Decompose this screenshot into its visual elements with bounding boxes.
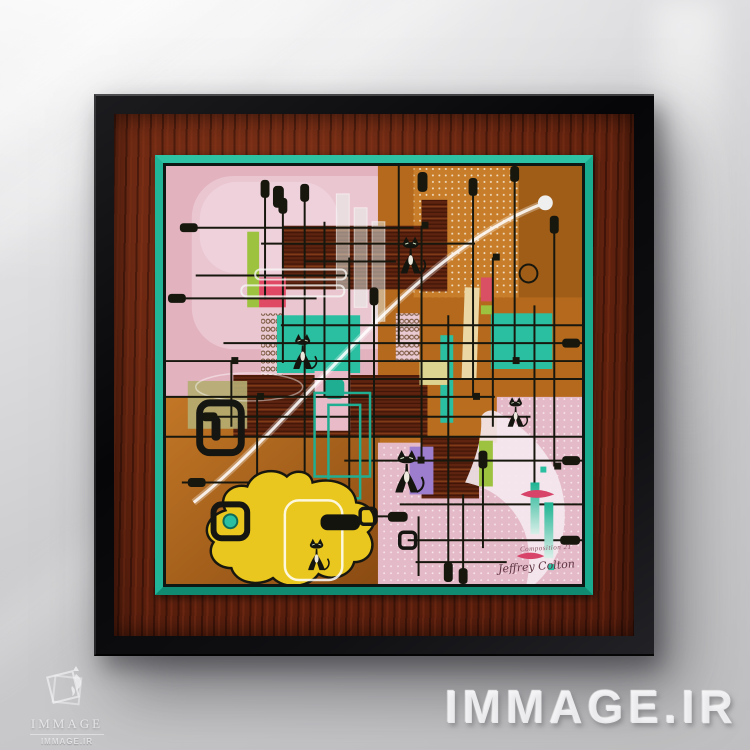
artwork-canvas: Composition 21 Jeffrey Colton <box>166 166 582 584</box>
site-logo: IMMAGE IMMAGE.IR <box>22 660 112 746</box>
wood-mat: Composition 21 Jeffrey Colton <box>114 114 634 636</box>
logo-diamond-flame-icon <box>36 660 98 714</box>
teal-liner: Composition 21 Jeffrey Colton <box>155 155 593 595</box>
watermark-text: IMMAGE.IR <box>445 680 738 734</box>
logo-site: IMMAGE.IR <box>22 737 112 746</box>
logo-name: IMMAGE <box>22 716 112 732</box>
wall-light-band <box>654 0 720 470</box>
picture-frame: Composition 21 Jeffrey Colton <box>94 94 654 656</box>
artwork-graphic <box>166 166 582 584</box>
logo-divider <box>30 734 104 735</box>
wall: Composition 21 Jeffrey Colton IMMAGE.IR … <box>0 0 750 750</box>
